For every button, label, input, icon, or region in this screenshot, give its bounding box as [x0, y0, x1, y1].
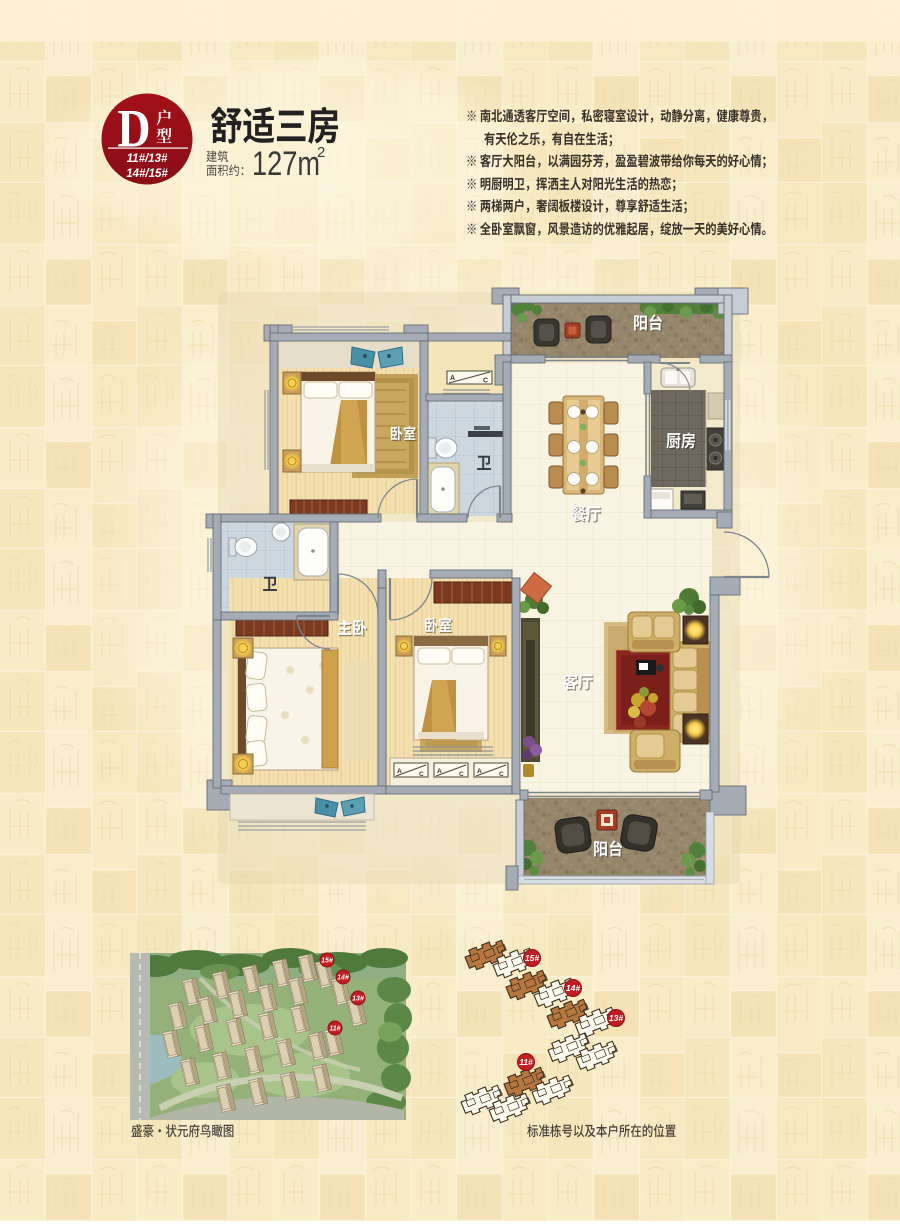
svg-text:14#: 14# [337, 975, 349, 982]
svg-text:C: C [499, 771, 504, 778]
svg-text:2: 2 [317, 144, 325, 161]
svg-text:A: A [477, 768, 482, 775]
svg-text:C: C [483, 378, 488, 385]
svg-text:D: D [117, 98, 150, 158]
svg-text:14#: 14# [566, 983, 580, 993]
svg-text:C: C [419, 771, 424, 778]
svg-text:11#: 11# [329, 1026, 340, 1033]
svg-text:A: A [450, 375, 455, 382]
svg-text:13#: 13# [609, 1013, 623, 1023]
svg-text:A: A [437, 768, 442, 775]
svg-text:127m: 127m [252, 144, 320, 183]
svg-text:13#: 13# [352, 996, 364, 1003]
svg-text:15#: 15# [321, 958, 333, 965]
svg-text:11#: 11# [519, 1057, 533, 1067]
svg-text:15#: 15# [525, 953, 539, 963]
svg-text:A: A [397, 768, 402, 775]
svg-text:C: C [459, 771, 464, 778]
svg-text:14#/15#: 14#/15# [126, 168, 168, 180]
svg-text:11#/13#: 11#/13# [127, 153, 168, 165]
